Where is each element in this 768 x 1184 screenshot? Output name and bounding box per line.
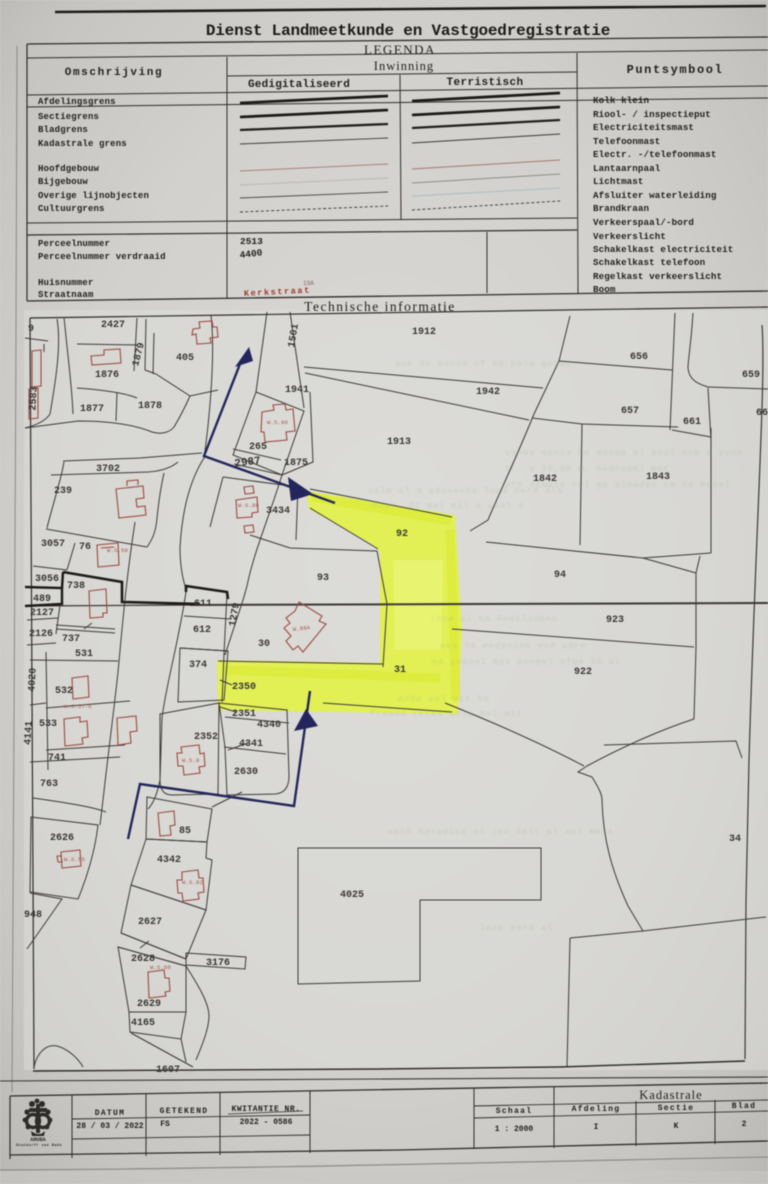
svg-text:Telefoonmast: Telefoonmast <box>593 136 660 147</box>
svg-text:1912: 1912 <box>412 327 436 338</box>
svg-text:533: 533 <box>39 719 57 730</box>
svg-text:948: 948 <box>24 910 42 921</box>
svg-text:374: 374 <box>189 660 207 671</box>
svg-text:DATUM: DATUM <box>95 1109 126 1118</box>
svg-text:1878: 1878 <box>138 401 162 412</box>
svg-text:2627: 2627 <box>138 917 162 928</box>
svg-text:1607: 1607 <box>156 1065 180 1076</box>
svg-text:aut de menad of he bela grmas: aut de menad of he bela grmas <box>395 359 572 369</box>
svg-text:3056: 3056 <box>35 574 59 585</box>
svg-text:lane berd al: lane berd al <box>480 923 553 933</box>
svg-text:30: 30 <box>258 639 270 650</box>
svg-text:W.S.82: W.S.82 <box>182 879 203 886</box>
svg-text:93: 93 <box>317 573 329 584</box>
svg-text:92: 92 <box>396 529 408 540</box>
svg-text:Afdeling: Afdeling <box>572 1105 621 1114</box>
svg-text:Inwinning: Inwinning <box>374 59 434 73</box>
svg-text:28 / 03 / 2022: 28 / 03 / 2022 <box>76 1122 143 1131</box>
svg-text:3057: 3057 <box>41 539 65 550</box>
svg-text:framdd refad anla bel mit: framdd refad anla bel mit <box>370 709 523 719</box>
svg-text:I: I <box>594 1123 599 1132</box>
svg-text:2022 - 0586: 2022 - 0586 <box>240 1118 293 1127</box>
svg-text:wea la medasine and adre: wea la medasine and adre <box>440 641 586 651</box>
svg-text:Riool- / inspectieput: Riool- / inspectieput <box>593 109 711 120</box>
svg-text:Schakelkast telefoon: Schakelkast telefoon <box>593 257 705 268</box>
svg-text:ARUBA: ARUBA <box>30 1137 46 1143</box>
svg-text:Bladgrens: Bladgrens <box>38 125 88 135</box>
svg-text:76: 76 <box>79 542 91 553</box>
svg-text:Regelkast verkeerslicht: Regelkast verkeerslicht <box>593 271 722 282</box>
svg-text:4340: 4340 <box>257 720 281 731</box>
svg-text:1941: 1941 <box>285 385 309 396</box>
svg-text:4341: 4341 <box>239 739 263 750</box>
svg-text:Perceelnummer verdraaid: Perceelnummer verdraaid <box>38 252 166 262</box>
svg-text:4165: 4165 <box>131 1018 155 1029</box>
svg-text:Cultuurgrens: Cultuurgrens <box>38 204 105 214</box>
svg-text:612: 612 <box>193 625 211 636</box>
svg-text:KWITANTIE NR.: KWITANTIE NR. <box>232 1105 301 1114</box>
svg-text:Scucksrfr vas Bads: Scucksrfr vas Bads <box>16 1143 62 1148</box>
svg-text:Terristisch: Terristisch <box>446 77 523 89</box>
svg-text:2: 2 <box>742 1120 747 1129</box>
svg-text:3176: 3176 <box>206 958 230 969</box>
svg-text:Schaal: Schaal <box>496 1107 533 1116</box>
svg-text:Verkeerslicht: Verkeerslicht <box>593 231 666 242</box>
svg-text:Lantaarnpaal: Lantaarnpaal <box>593 163 661 174</box>
svg-text:LEGENDA: LEGENDA <box>364 42 436 57</box>
svg-text:4342: 4342 <box>157 855 181 866</box>
svg-text:Sectiegrens: Sectiegrens <box>38 112 99 122</box>
svg-text:GETEKEND: GETEKEND <box>160 1107 209 1116</box>
svg-text:Electr. -/telefoonmast: Electr. -/telefoonmast <box>593 149 717 160</box>
svg-text:737: 737 <box>62 634 80 645</box>
svg-text:1913: 1913 <box>387 437 411 448</box>
svg-text:W.S.88: W.S.88 <box>238 502 259 509</box>
svg-text:Kolk klein: Kolk klein <box>593 95 649 106</box>
svg-text:2513: 2513 <box>240 236 263 247</box>
svg-text:W.S.55: W.S.55 <box>64 856 85 863</box>
svg-text:2427: 2427 <box>101 320 125 331</box>
svg-text:611: 611 <box>194 599 212 610</box>
svg-text:2350: 2350 <box>232 682 256 693</box>
svg-text:Schakelkast electriciteit: Schakelkast electriciteit <box>593 244 733 255</box>
svg-text:2626: 2626 <box>50 833 74 844</box>
svg-text:W.S.59: W.S.59 <box>107 547 128 554</box>
svg-text:2630: 2630 <box>234 767 258 778</box>
svg-text:Kadastrale grens: Kadastrale grens <box>38 139 127 149</box>
svg-text:K: K <box>674 1122 679 1131</box>
svg-text:1876: 1876 <box>95 370 119 381</box>
svg-text:Blad: Blad <box>732 1102 756 1111</box>
svg-text:Afdelingsgrens: Afdelingsgrens <box>38 97 116 107</box>
svg-text:wach heradlae al jen delt al a: wach heradlae al jen delt al anl meda <box>388 827 614 837</box>
svg-text:Brandkraan: Brandkraan <box>593 203 649 214</box>
svg-text:W.S.90: W.S.90 <box>267 419 288 426</box>
svg-text:94: 94 <box>554 570 566 581</box>
svg-text:Huisnummer: Huisnummer <box>38 278 94 288</box>
svg-text:Verkeerspaal/-bord: Verkeerspaal/-bord <box>593 217 694 228</box>
svg-text:34: 34 <box>729 834 741 845</box>
svg-text:Dienst Landmeetkunde en Vastgo: Dienst Landmeetkunde en Vastgoedregistra… <box>206 22 610 40</box>
svg-text:659: 659 <box>742 370 760 381</box>
svg-text:763: 763 <box>40 779 58 790</box>
svg-text:W.S.80: W.S.80 <box>150 964 171 971</box>
svg-text:FS: FS <box>160 1120 170 1129</box>
svg-text:Bijgebouw: Bijgebouw <box>38 177 88 187</box>
svg-text:Gedigitaliseerd: Gedigitaliseerd <box>248 79 350 91</box>
svg-text:Hoofdgebouw: Hoofdgebouw <box>38 164 100 174</box>
svg-text:Sectie: Sectie <box>658 1104 695 1113</box>
svg-text:Kadastrale: Kadastrale <box>639 1088 702 1102</box>
svg-text:1875: 1875 <box>284 458 308 469</box>
svg-text:1942: 1942 <box>476 387 500 398</box>
svg-text:2126: 2126 <box>29 629 53 640</box>
svg-text:1 : 2000: 1 : 2000 <box>495 1125 534 1134</box>
svg-text:656: 656 <box>630 352 648 363</box>
svg-text:239: 239 <box>54 486 72 497</box>
svg-text:Puntsymbool: Puntsymbool <box>627 63 724 77</box>
svg-text:489: 489 <box>33 594 51 605</box>
svg-text:madr. 21 mel mil a venl a: madr. 21 mel mil a venl a <box>372 501 525 511</box>
svg-text:Perceelnummer: Perceelnummer <box>38 239 110 249</box>
svg-text:W.S.8: W.S.8 <box>182 757 200 764</box>
svg-text:2352: 2352 <box>194 732 218 743</box>
svg-text:532: 532 <box>55 686 73 697</box>
svg-text:2629: 2629 <box>137 999 161 1010</box>
svg-text:3434: 3434 <box>266 506 290 517</box>
svg-text:ma gednal mas peopel afge 20 a: ma gednal mas peopel afge 20 al <box>432 657 621 667</box>
svg-text:531: 531 <box>75 649 93 660</box>
svg-text:Overige lijnobjecten: Overige lijnobjecten <box>38 191 149 201</box>
svg-text:Omschrijving: Omschrijving <box>65 67 163 79</box>
svg-text:tr. a 20,00 m, bedroeml met: tr. a 20,00 m, bedroeml met <box>505 464 670 474</box>
svg-text:Lichtmast: Lichtmast <box>593 176 644 187</box>
svg-text:4020: 4020 <box>27 668 39 693</box>
svg-text:2351: 2351 <box>232 709 256 720</box>
svg-text:31: 31 <box>394 665 406 676</box>
svg-text:657: 657 <box>621 406 639 417</box>
svg-text:85: 85 <box>179 826 191 837</box>
svg-text:anda sal wit ha: anda sal wit ha <box>398 694 490 704</box>
svg-text:265: 265 <box>249 442 267 453</box>
svg-text:4141: 4141 <box>23 721 35 746</box>
svg-text:1877: 1877 <box>80 404 104 415</box>
svg-text:9: 9 <box>28 324 34 335</box>
svg-text:922: 922 <box>574 667 592 678</box>
svg-text:lane el ha Pedelanben: lane el ha Pedelanben <box>430 614 558 624</box>
svg-text:venba suniv ha denma al eopl a: venba suniv ha denma al eopl anb a avde <box>505 448 743 458</box>
svg-text:3702: 3702 <box>96 464 120 475</box>
svg-text:2127: 2127 <box>30 608 54 619</box>
svg-text:405: 405 <box>176 353 194 364</box>
svg-text:Afsluiter waterleiding: Afsluiter waterleiding <box>593 190 717 201</box>
svg-text:Electriciteitsmast: Electriciteitsmast <box>593 122 694 133</box>
svg-text:923: 923 <box>606 615 624 626</box>
svg-text:salm al a adinanda Tomd berd d: salm al a adinanda Tomd berd dla <box>368 486 563 496</box>
svg-text:W.S.57-E: W.S.57-E <box>64 703 93 710</box>
svg-text:741: 741 <box>48 753 66 764</box>
svg-text:Straatnaam: Straatnaam <box>38 290 94 300</box>
svg-text:66: 66 <box>756 408 768 419</box>
svg-text:738: 738 <box>67 581 85 592</box>
svg-text:4025: 4025 <box>340 890 364 901</box>
svg-text:Boom: Boom <box>593 284 616 295</box>
svg-text:661: 661 <box>683 417 701 428</box>
svg-text:2628: 2628 <box>131 954 155 965</box>
svg-text:2583: 2583 <box>28 386 40 411</box>
